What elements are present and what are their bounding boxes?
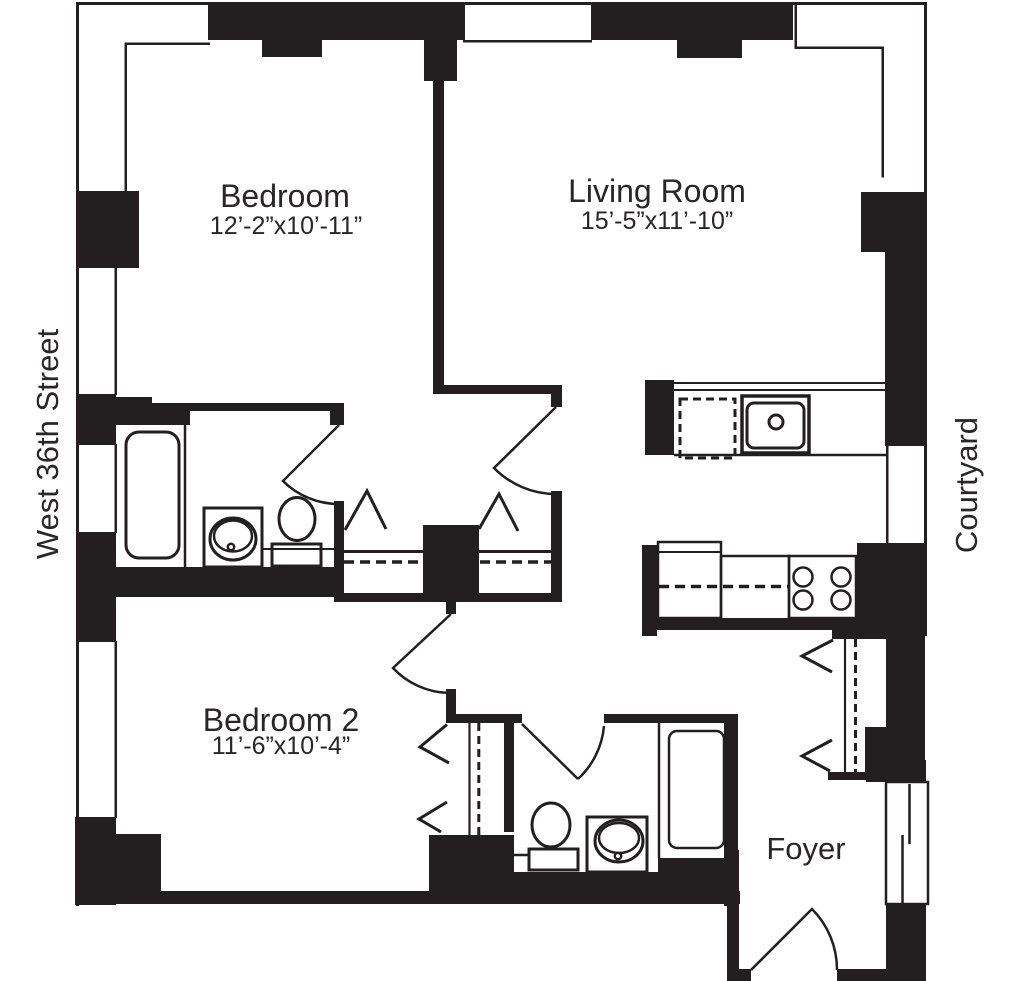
svg-text:Bedroom: Bedroom	[220, 178, 350, 214]
svg-text:Foyer: Foyer	[766, 831, 845, 866]
svg-text:12’-2”x10’-11”: 12’-2”x10’-11”	[210, 212, 362, 240]
svg-text:15’-5”x11’-10”: 15’-5”x11’-10”	[581, 207, 733, 235]
svg-text:Living Room: Living Room	[568, 173, 746, 209]
svg-text:Courtyard: Courtyard	[949, 417, 984, 553]
svg-text:11’-6”x10’-4”: 11’-6”x10’-4”	[212, 732, 350, 760]
svg-text:West 36th Street: West 36th Street	[30, 328, 65, 559]
